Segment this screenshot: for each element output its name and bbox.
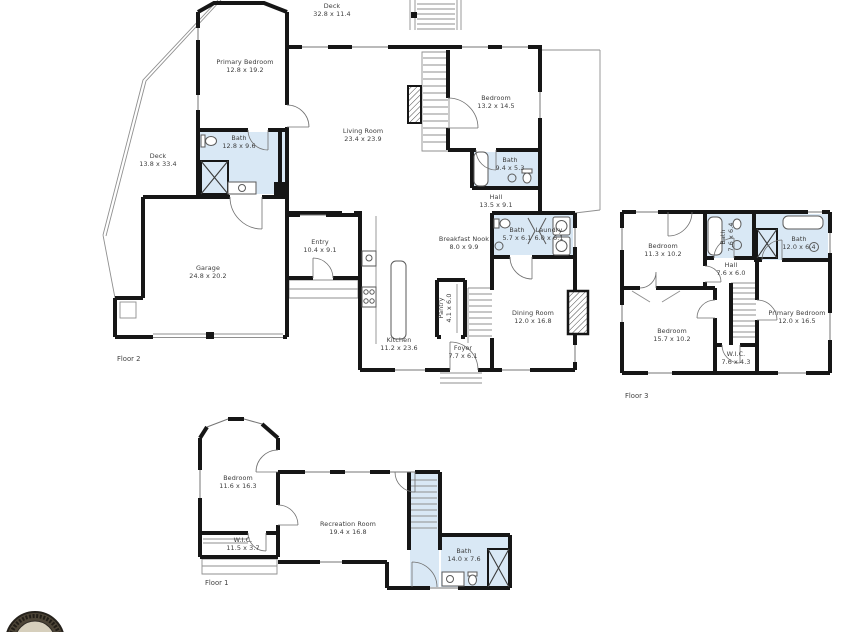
garage-utility-box xyxy=(120,302,136,318)
floor-3-plan: Bedroom 11.3 x 10.2 Bath 7.6 x 6.4 Bath … xyxy=(622,212,830,400)
room-dims: 6.0 x 6.1 xyxy=(534,234,563,242)
room-dims: 13.8 x 33.4 xyxy=(139,160,176,168)
room-dims: 23.4 x 23.9 xyxy=(344,135,381,143)
room-label: Bath xyxy=(456,547,471,555)
patio-lines xyxy=(202,559,277,574)
room-dims: 11.5 x 3.7 xyxy=(226,544,259,552)
room-dims: 13.2 x 14.5 xyxy=(477,102,514,110)
room-label: Living Room xyxy=(343,127,383,135)
dining-fireplace xyxy=(568,291,588,334)
room-label: Entry xyxy=(311,238,329,246)
room-label: W.I.C. xyxy=(234,536,253,544)
room-label: Hall xyxy=(725,261,738,269)
room-dims: 12.0 x 16.8 xyxy=(514,317,551,325)
room-dims: 12.8 x 19.2 xyxy=(226,66,263,74)
room-dims: 10.4 x 9.1 xyxy=(303,246,336,254)
pantry-label-vertical: Pantry 4.1 x 6.0 xyxy=(437,293,453,322)
room-dims: 11.2 x 23.6 xyxy=(380,344,417,352)
room-label: Primary Bedroom xyxy=(768,309,825,317)
room-dims: 11.6 x 16.3 xyxy=(219,482,256,490)
room-label: Bath xyxy=(791,235,806,243)
floor1-fixtures xyxy=(442,572,477,586)
wall-block xyxy=(274,182,287,196)
svg-text:7.6 x 6.4: 7.6 x 6.4 xyxy=(727,222,735,251)
room-dims: 15.7 x 10.2 xyxy=(653,335,690,343)
room-label: Kitchen xyxy=(387,336,412,344)
room-label: Bedroom xyxy=(223,474,253,482)
room-dims: 13.5 x 9.1 xyxy=(479,201,512,209)
room-label: Recreation Room xyxy=(320,520,376,528)
room-label: Bath xyxy=(502,156,517,164)
room-label: Bedroom xyxy=(648,242,678,250)
closet-corner-marks xyxy=(632,291,680,302)
room-dims: 12.0 x 16.5 xyxy=(778,317,815,325)
room-dims: 5.7 x 6.1 xyxy=(502,234,531,242)
living-room-stairs xyxy=(422,52,449,151)
svg-text:Bath: Bath xyxy=(719,229,727,244)
room-dims: 14.0 x 7.6 xyxy=(447,555,480,563)
room-label: Garage xyxy=(196,264,220,272)
floor-2-plan: Deck 32.8 x 11.4 Primary Bedroom 12.8 x … xyxy=(103,0,600,383)
foyer-porch-steps xyxy=(440,373,482,383)
floor3-room-labels: Bedroom 11.3 x 10.2 Bath 7.6 x 6.4 Bath … xyxy=(644,222,825,366)
garage-door-post xyxy=(206,332,214,339)
chimney-hatch xyxy=(408,86,421,123)
entry-porch-steps xyxy=(289,280,358,298)
garage-door-line xyxy=(153,334,283,338)
main-stairs xyxy=(468,288,493,343)
room-dims: 7.7 x 6.1 xyxy=(448,352,477,360)
svg-text:Pantry: Pantry xyxy=(437,297,445,318)
deck-stairs xyxy=(410,0,461,30)
floor2-walls xyxy=(115,3,575,370)
room-label: Dining Room xyxy=(512,309,554,317)
room-label: Foyer xyxy=(454,344,472,352)
room-label: Bedroom xyxy=(481,94,511,102)
room-dims: 12.8 x 9.6 xyxy=(222,142,255,150)
floor-1-label: Floor 1 xyxy=(205,579,228,587)
floor-1-plan: Bedroom 11.6 x 16.3 W.I.C. 11.5 x 3.7 Re… xyxy=(200,419,510,588)
floor-2-label: Floor 2 xyxy=(117,355,140,363)
room-dims: 7.6 x 4.3 xyxy=(721,358,750,366)
room-dims: 12.0 x 6.4 xyxy=(782,243,815,251)
circular-seal-logo xyxy=(6,612,64,632)
floor3-stairs xyxy=(731,283,757,337)
room-label: Breakfast Nook xyxy=(439,235,489,243)
room-label: Bedroom xyxy=(657,327,687,335)
floor-3-label: Floor 3 xyxy=(625,392,648,400)
room-label: Bath xyxy=(509,226,524,234)
room-label: Deck xyxy=(150,152,167,160)
floorplan-page: Deck 32.8 x 11.4 Primary Bedroom 12.8 x … xyxy=(0,0,843,632)
room-label: Hall xyxy=(490,193,503,201)
room-label: W.I.C. xyxy=(727,350,746,358)
room-dims: 32.8 x 11.4 xyxy=(313,10,350,18)
floorplan-svg: Deck 32.8 x 11.4 Primary Bedroom 12.8 x … xyxy=(0,0,843,632)
room-dims: 8.0 x 9.9 xyxy=(449,243,478,251)
svg-text:4.1 x 6.0: 4.1 x 6.0 xyxy=(445,293,453,322)
room-dims: 9.4 x 5.3 xyxy=(495,164,524,172)
room-dims: 7.6 x 6.0 xyxy=(716,269,745,277)
room-label: Primary Bedroom xyxy=(216,58,273,66)
room-dims: 19.4 x 16.8 xyxy=(329,528,366,536)
room-label: Bath xyxy=(231,134,246,142)
room-label: Laundry xyxy=(536,226,563,234)
room-dims: 11.3 x 10.2 xyxy=(644,250,681,258)
stair-corridor-area xyxy=(410,473,439,587)
deck-stair-post xyxy=(411,12,417,18)
room-label: Deck xyxy=(324,2,341,10)
room-dims: 24.8 x 20.2 xyxy=(189,272,226,280)
